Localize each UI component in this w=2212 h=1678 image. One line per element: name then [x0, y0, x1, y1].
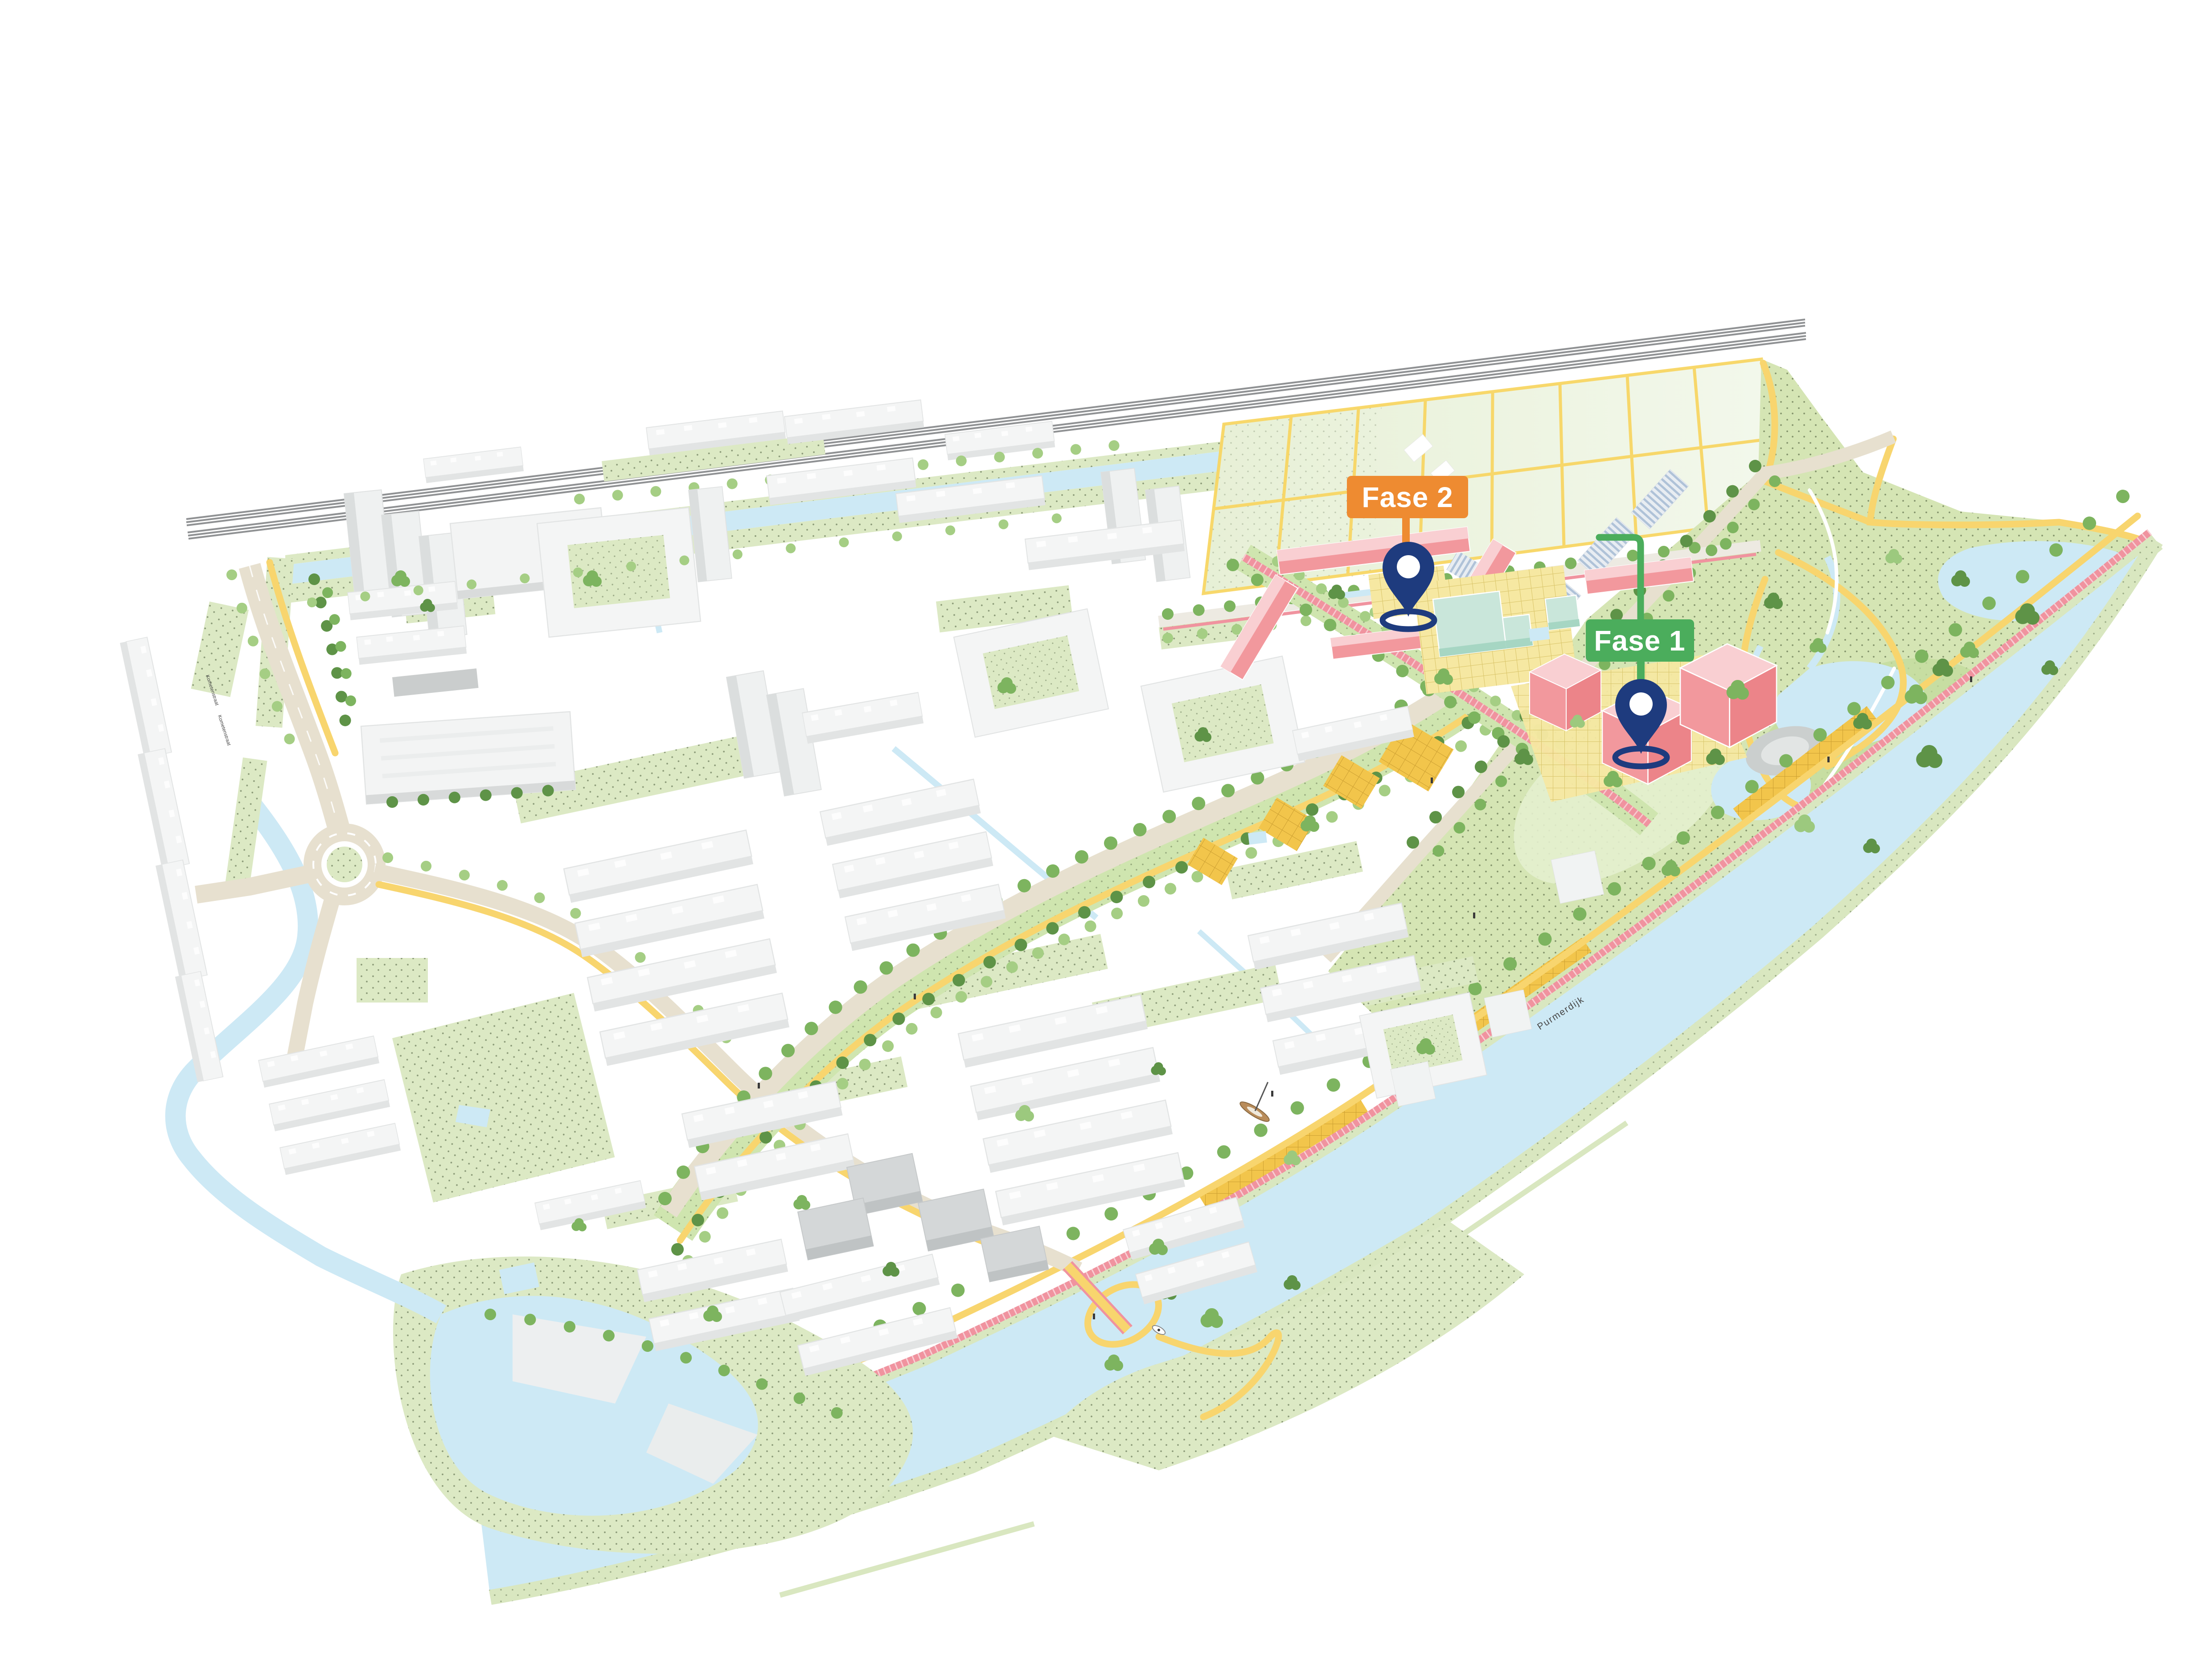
- roundabout: [304, 823, 386, 905]
- masterplan-map: Kometenstraat Kometenstraat Purmerdijk F…: [0, 0, 2212, 1678]
- location-pin-icon[interactable]: [1383, 542, 1434, 629]
- fase2-label-text: Fase 2: [1362, 481, 1453, 513]
- sailboat: [1238, 1076, 1286, 1125]
- street-label-kometenstraat-2: Kometenstraat: [217, 714, 232, 746]
- location-pin-icon[interactable]: [1615, 679, 1667, 766]
- fase1-label-text: Fase 1: [1594, 625, 1685, 657]
